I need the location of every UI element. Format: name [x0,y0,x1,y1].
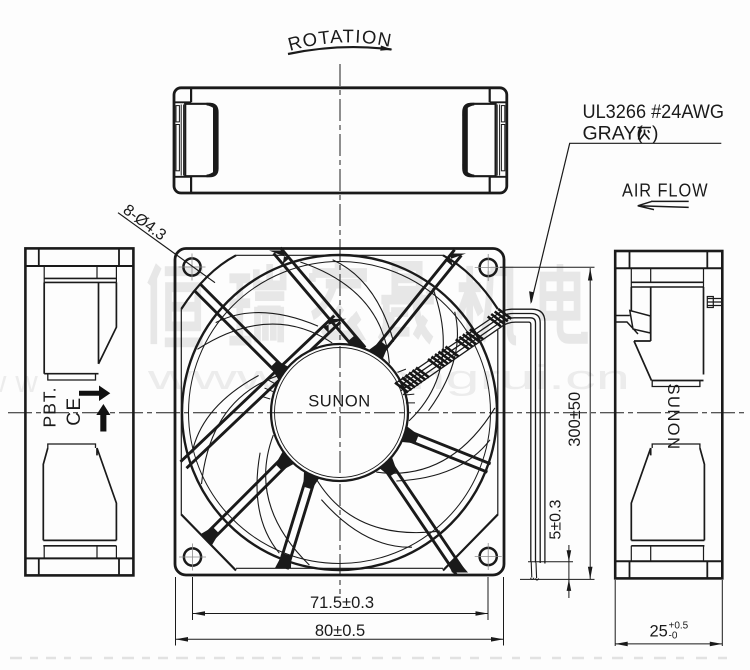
svg-text:UL3266 #24AWG: UL3266 #24AWG [583,101,725,123]
svg-text:-0: -0 [669,631,678,642]
svg-text:): ) [652,123,659,145]
svg-text:AIR FLOW: AIR FLOW [622,181,709,201]
svg-text:8-Ø4.3: 8-Ø4.3 [120,202,170,245]
svg-text:25: 25 [650,623,668,641]
svg-text:300±50: 300±50 [566,392,584,447]
svg-text:SUNON: SUNON [664,383,682,450]
svg-text:CE: CE [64,396,85,425]
svg-text:GRAY(: GRAY( [583,123,644,145]
svg-text:71.5±0.3: 71.5±0.3 [310,594,374,612]
svg-text:PBT.: PBT. [40,387,60,428]
svg-text:5±0.3: 5±0.3 [547,500,564,540]
svg-text:80±0.5: 80±0.5 [315,622,365,640]
